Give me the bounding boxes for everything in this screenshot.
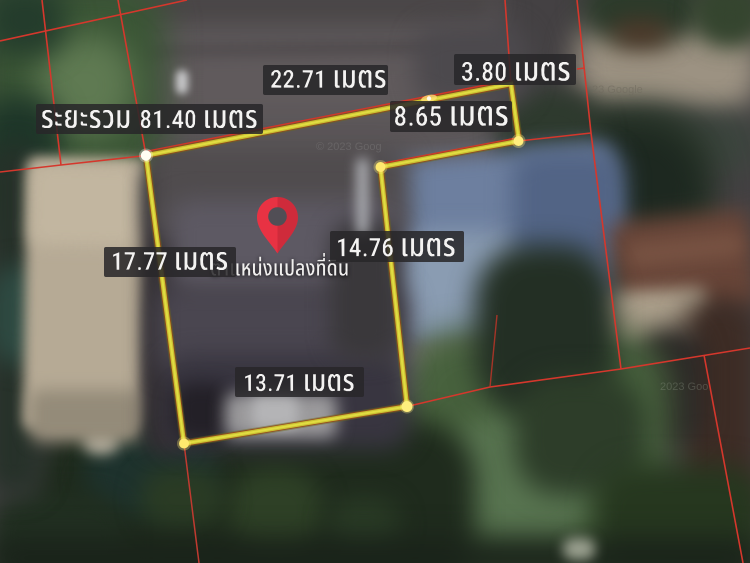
svg-text:23 Google: 23 Google — [592, 84, 643, 96]
svg-text:© 2023 Goog: © 2023 Goog — [316, 141, 382, 153]
svg-text:2023 Goo: 2023 Goo — [660, 381, 708, 393]
